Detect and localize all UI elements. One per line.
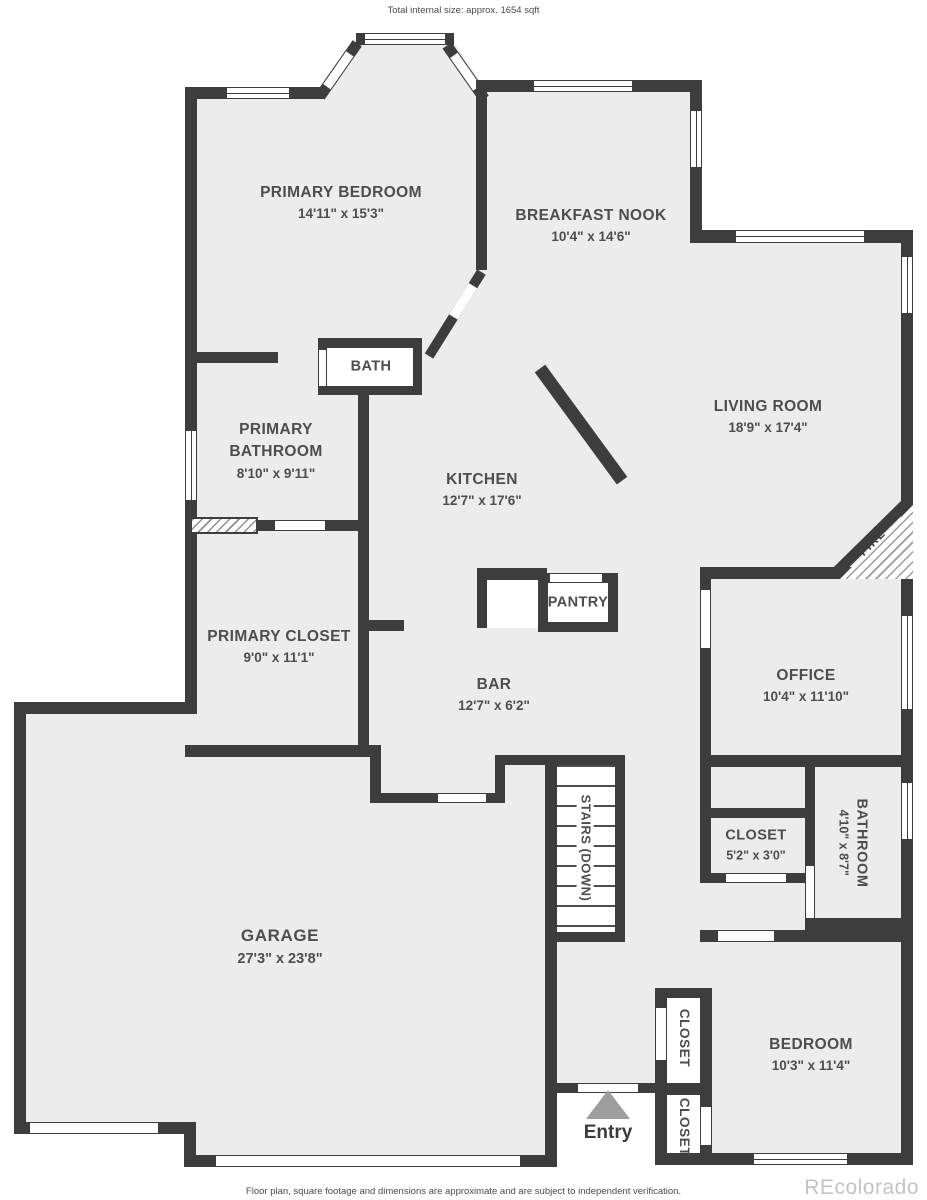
wall — [700, 755, 711, 883]
shower-hatch — [190, 517, 258, 534]
room-label-garage: GARAGE 27'3" x 23'8" — [237, 924, 322, 970]
room-name: BATHROOM — [852, 798, 871, 887]
window — [753, 1153, 848, 1165]
room-label-primary-closet: PRIMARY CLOSET 9'0" x 11'1" — [207, 626, 350, 668]
room-label-breakfast-nook: BREAKFAST NOOK 10'4" x 14'6" — [515, 205, 666, 247]
room-dims: 4'10" x 8'7" — [835, 798, 851, 887]
room-name: PRIMARY BEDROOM — [260, 182, 422, 204]
wall — [615, 755, 625, 942]
floor-plan-page: { "meta": { "size_note": "Total internal… — [0, 0, 927, 1200]
room-name: PANTRY — [548, 592, 608, 613]
door-opening — [550, 573, 602, 583]
wall — [185, 352, 278, 363]
door-opening — [726, 873, 786, 883]
window — [901, 256, 913, 314]
door-opening — [655, 1008, 667, 1060]
room-name: GARAGE — [237, 924, 322, 949]
room-label-bar: BAR 12'7" x 6'2" — [458, 674, 530, 716]
entry-label: Entry — [584, 1122, 633, 1144]
disclaimer-note: Floor plan, square footage and dimension… — [0, 1186, 927, 1197]
room-label-living-room: LIVING ROOM 18'9" x 17'4" — [714, 396, 823, 438]
room-dims: 10'4" x 14'6" — [515, 227, 666, 247]
size-note: Total internal size: approx. 1654 sqft — [0, 5, 927, 16]
window — [690, 110, 702, 168]
watermark: REcolorado — [804, 1176, 919, 1200]
window — [901, 615, 913, 710]
room-dims: 12'7" x 17'6" — [442, 491, 521, 511]
wall — [538, 622, 618, 632]
room-label-hall-closet: CLOSET 5'2" x 3'0" — [725, 825, 786, 864]
wall — [477, 568, 487, 628]
room-name: CLOSET — [725, 825, 786, 846]
room-label-entry-closet-lower: CLOSET — [675, 1098, 693, 1156]
wall — [358, 532, 369, 757]
wall — [323, 520, 368, 531]
wall — [520, 1155, 557, 1167]
window — [735, 230, 865, 243]
room-label-office: OFFICE 10'4" x 11'10" — [763, 665, 849, 707]
room-label-bath: BATH — [351, 356, 392, 377]
room-name: BAR — [458, 674, 530, 696]
window — [533, 80, 633, 92]
room-name: CLOSET — [675, 1098, 693, 1156]
wall — [318, 386, 422, 395]
garage-floor — [14, 702, 557, 1122]
room-label-kitchen: KITCHEN 12'7" x 17'6" — [442, 469, 521, 511]
room-label-second-bathroom: BATHROOM 4'10" x 8'7" — [835, 798, 870, 887]
room-dims: 27'3" x 23'8" — [237, 949, 322, 970]
wall — [318, 338, 422, 348]
wall — [476, 80, 487, 270]
wall — [477, 568, 547, 580]
room-name: BATH — [351, 356, 392, 377]
room-label-primary-bathroom: PRIMARY BATHROOM 8'10" x 9'11" — [229, 419, 322, 484]
door-opening — [275, 520, 325, 531]
room-label-pantry: PANTRY — [548, 592, 608, 613]
window — [226, 87, 290, 99]
wall — [14, 702, 26, 1134]
room-dims: 10'3" x 11'4" — [769, 1056, 853, 1076]
stairs-label: STAIRS (DOWN) — [577, 793, 594, 904]
wall — [14, 1122, 30, 1134]
alcove-interior — [487, 580, 538, 628]
wall — [14, 702, 197, 714]
room-label-bedroom: BEDROOM 10'3" x 11'4" — [769, 1034, 853, 1076]
wall — [805, 918, 913, 930]
room-name: BATHROOM — [229, 441, 322, 463]
window — [364, 33, 446, 45]
room-dims: 12'7" x 6'2" — [458, 696, 530, 716]
room-dims: 5'2" x 3'0" — [725, 846, 786, 864]
room-name: OFFICE — [763, 665, 849, 687]
wall — [545, 932, 625, 942]
wall — [545, 755, 625, 765]
entry-arrow-icon — [586, 1090, 630, 1119]
window — [901, 782, 913, 840]
room-dims: 9'0" x 11'1" — [207, 648, 350, 668]
wall — [185, 87, 197, 714]
room-dims: 8'10" x 9'11" — [229, 464, 322, 484]
room-dims: 10'4" x 11'10" — [763, 687, 849, 707]
wall — [368, 620, 404, 631]
door-opening — [700, 590, 711, 648]
room-name: PRIMARY — [229, 419, 322, 441]
door-opening — [438, 793, 486, 803]
room-label-primary-bedroom: PRIMARY BEDROOM 14'11" x 15'3" — [260, 182, 422, 224]
room-name: CLOSET — [675, 1009, 693, 1067]
door-opening — [700, 1107, 712, 1145]
door-opening — [318, 350, 327, 386]
room-name: KITCHEN — [442, 469, 521, 491]
wall — [184, 1155, 216, 1167]
room-name: BREAKFAST NOOK — [515, 205, 666, 227]
wall — [185, 745, 381, 757]
room-dims: 14'11" x 15'3" — [260, 204, 422, 224]
garage-door — [216, 1155, 520, 1167]
door-opening — [805, 866, 815, 918]
wall — [700, 808, 810, 818]
door-opening — [718, 930, 774, 942]
room-label-entry-closet-upper: CLOSET — [675, 1009, 693, 1067]
wall — [545, 755, 557, 1165]
wall — [358, 395, 369, 532]
room-name: BEDROOM — [769, 1034, 853, 1056]
room-name: PRIMARY CLOSET — [207, 626, 350, 648]
garage-door — [30, 1122, 158, 1134]
room-dims: 18'9" x 17'4" — [714, 418, 823, 438]
room-name: LIVING ROOM — [714, 396, 823, 418]
window — [185, 430, 197, 501]
